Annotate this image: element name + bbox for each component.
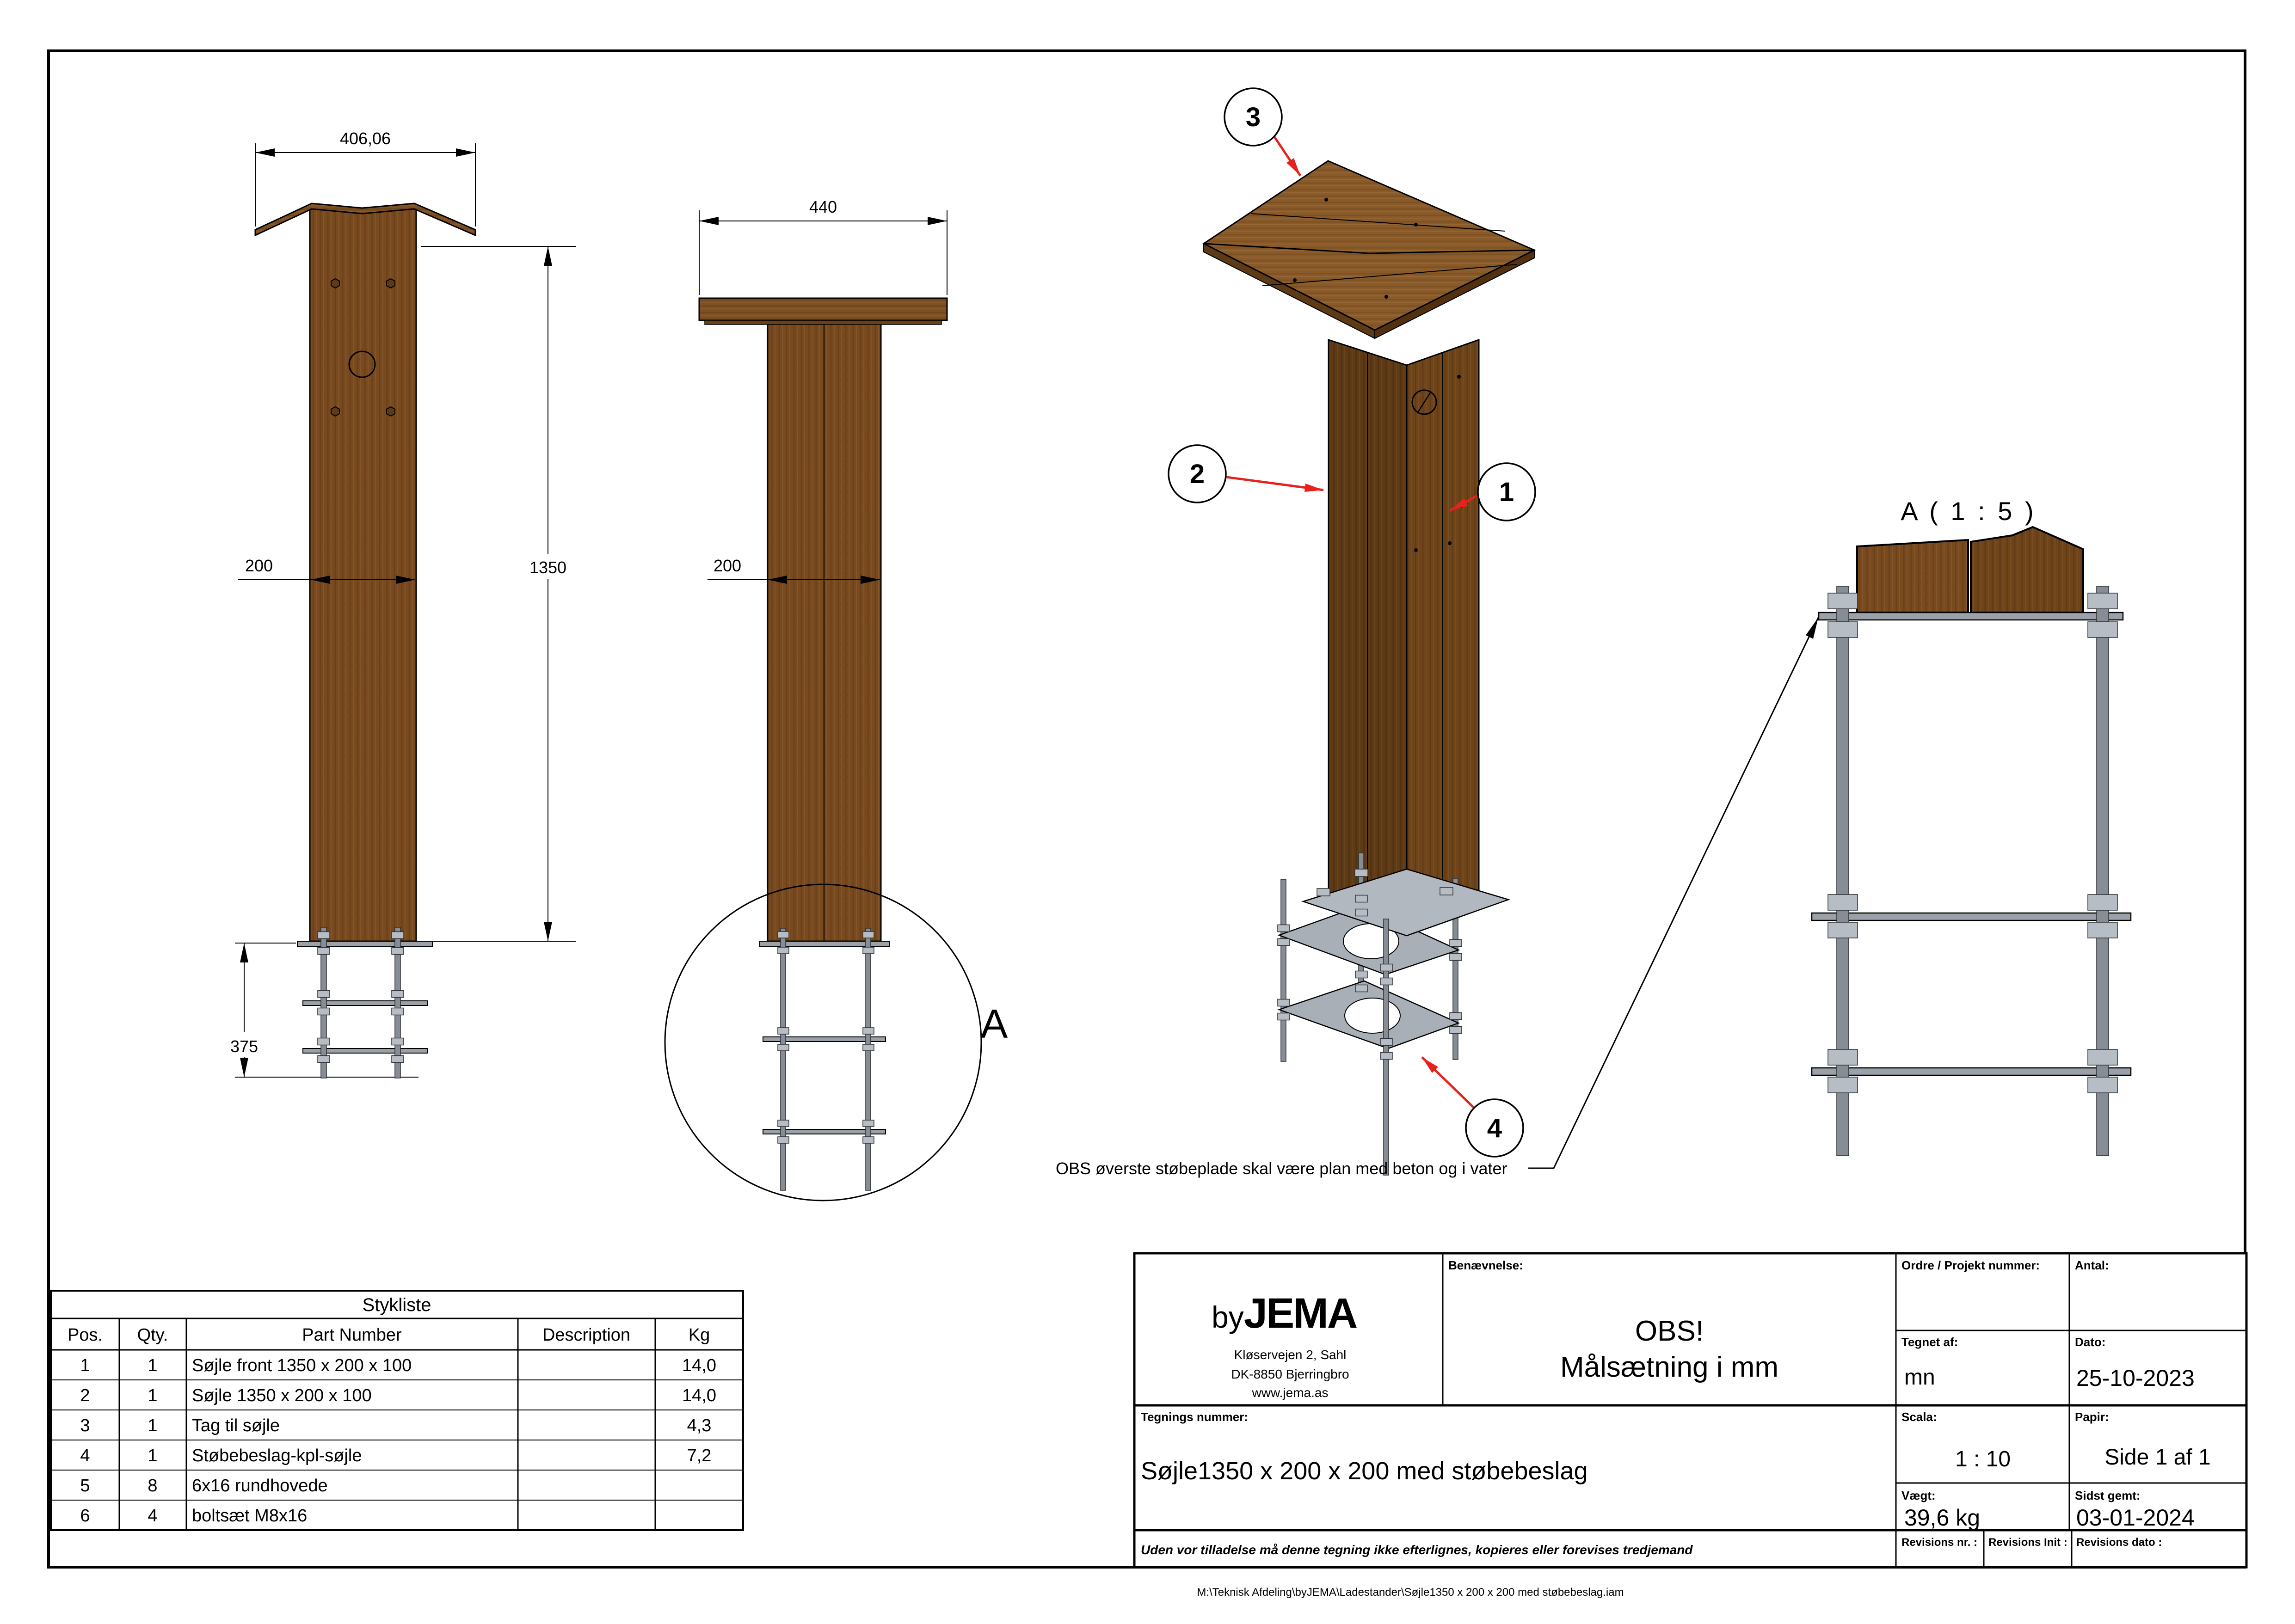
hex-nut	[1380, 964, 1392, 971]
hex-nut	[1450, 940, 1462, 947]
hex-nut	[392, 1038, 404, 1045]
label-vaegt: Vægt:	[1901, 1489, 1936, 1502]
hex-nut	[1380, 1053, 1392, 1060]
hex-nut	[778, 1028, 789, 1034]
hex-nut	[778, 1137, 789, 1143]
value-benaevnelse-line2: Målsætning i mm	[1560, 1351, 1778, 1383]
dim-text: 440	[809, 197, 837, 216]
svg-text:4: 4	[148, 1506, 157, 1526]
svg-text:7,2: 7,2	[687, 1446, 712, 1465]
plate-hole	[1345, 998, 1400, 1033]
dim-text: 406,06	[340, 129, 391, 148]
label-scala: Scala:	[1901, 1410, 1937, 1424]
hex-nut	[778, 1120, 789, 1127]
hex-nut	[392, 948, 404, 955]
company-address1: Kløservejen 2, Sahl	[1234, 1348, 1347, 1362]
hex-nut	[318, 1008, 330, 1015]
svg-text:8: 8	[148, 1476, 157, 1495]
threaded-rod	[2097, 586, 2109, 1156]
svg-text:4: 4	[80, 1446, 90, 1465]
side-roof-lip	[705, 320, 941, 325]
hex-nut	[1450, 954, 1462, 961]
hex-nut	[392, 1008, 404, 1015]
threaded-rod	[1281, 879, 1286, 1061]
hex-nut	[863, 1044, 874, 1051]
svg-text:1: 1	[148, 1356, 157, 1375]
hex-nut	[1828, 895, 1858, 910]
svg-text:Søjle 1350 x 200 x 100: Søjle 1350 x 200 x 100	[192, 1386, 372, 1405]
svg-text:6: 6	[80, 1506, 90, 1526]
svg-text:1: 1	[148, 1416, 157, 1435]
label-revisions-init: Revisions Init :	[1988, 1536, 2067, 1549]
svg-text:Søjle front 1350 x 200 x 100: Søjle front 1350 x 200 x 100	[192, 1356, 412, 1375]
label-tegnings-nummer: Tegnings nummer:	[1141, 1410, 1248, 1424]
table-title: Stykliste	[363, 1295, 431, 1315]
hex-nut	[1355, 895, 1367, 902]
label-tegnet-af: Tegnet af:	[1901, 1335, 1958, 1349]
hex-nut	[1278, 925, 1290, 932]
hex-nut	[2088, 593, 2117, 609]
parts-table: Stykliste Pos. Qty. Part Number Descript…	[51, 1291, 743, 1530]
dim-text: 375	[230, 1037, 258, 1056]
balloon-number: 1	[1499, 477, 1514, 507]
value-dato: 25-10-2023	[2076, 1365, 2195, 1391]
value-tegnet-af: mn	[1904, 1365, 1935, 1390]
company-website: www.jema.as	[1252, 1385, 1329, 1400]
svg-text:3: 3	[80, 1416, 90, 1435]
screw-icon	[331, 407, 339, 416]
hex-nut	[1828, 1077, 1858, 1093]
threaded-rod	[866, 928, 871, 1190]
hex-nut	[1317, 889, 1330, 896]
threaded-rod	[1837, 586, 1849, 1156]
svg-text:1: 1	[148, 1446, 157, 1465]
hex-nut	[863, 947, 874, 954]
company-address2: DK-8850 Bjerringbro	[1231, 1367, 1349, 1381]
label-dato: Dato:	[2075, 1335, 2105, 1349]
detail-view-title: A ( 1 : 5 )	[1901, 496, 2036, 526]
label-papir: Papir:	[2075, 1410, 2109, 1424]
file-path: M:\Teknisk Afdeling\byJEMA\Ladestander\S…	[1197, 1586, 1624, 1599]
dim-text: 200	[714, 556, 741, 575]
detail-bar	[1812, 913, 2131, 920]
threaded-rod	[781, 928, 786, 1190]
label-benaevnelse: Benævnelse:	[1448, 1258, 1523, 1272]
screw-icon	[387, 407, 395, 416]
detail-bar	[1812, 1068, 2131, 1075]
hex-nut	[318, 932, 330, 939]
title-block: byJEMA Kløservejen 2, Sahl DK-8850 Bjerr…	[1134, 1253, 2246, 1567]
dim-text: 200	[245, 556, 273, 575]
hex-nut	[318, 1056, 330, 1063]
detail-wood-left	[1857, 540, 1968, 613]
svg-text:4,3: 4,3	[687, 1416, 712, 1435]
hex-nut	[778, 932, 789, 938]
hex-nut	[1828, 593, 1858, 609]
dim-text: 1350	[529, 558, 566, 577]
screw-icon	[331, 279, 339, 288]
detail-label: A	[981, 1001, 1008, 1047]
hex-nut	[1278, 939, 1290, 946]
hex-nut	[778, 1044, 789, 1051]
col-header-desc: Description	[542, 1325, 630, 1345]
svg-text:6x16 rundhovede: 6x16 rundhovede	[192, 1476, 328, 1495]
hex-nut	[2088, 1049, 2117, 1065]
value-vaegt: 39,6 kg	[1904, 1505, 1980, 1531]
front-column	[310, 208, 416, 941]
balloon-number: 2	[1190, 459, 1205, 489]
hex-nut	[863, 1137, 874, 1143]
screw-icon	[387, 279, 395, 288]
hex-nut	[1380, 1039, 1392, 1046]
label-revisions-nr: Revisions nr. :	[1901, 1536, 1977, 1549]
hex-nut	[392, 1056, 404, 1063]
label-revisions-dato: Revisions dato :	[2076, 1536, 2162, 1549]
svg-text:2: 2	[80, 1386, 90, 1405]
balloon-number: 4	[1487, 1113, 1502, 1143]
col-header-part: Part Number	[302, 1325, 402, 1345]
iso-anchor-rods-front	[1384, 919, 1389, 1175]
svg-text:boltsæt M8x16: boltsæt M8x16	[192, 1506, 307, 1526]
svg-text:1: 1	[80, 1356, 90, 1375]
technical-drawing-sheet: 406,06 200 1350 375	[0, 0, 2295, 1622]
threaded-rod	[1384, 919, 1389, 1175]
balloon-number: 3	[1246, 102, 1261, 132]
hex-nut	[1355, 869, 1368, 876]
value-tegnings-nummer: Søjle1350 x 200 x 200 med støbebeslag	[1141, 1457, 1588, 1485]
hex-nut	[1828, 622, 1858, 637]
hex-nut	[318, 1038, 330, 1045]
col-header-qty: Qty.	[137, 1325, 168, 1345]
svg-text:14,0: 14,0	[682, 1386, 716, 1405]
hex-nut	[863, 932, 874, 938]
hex-nut	[392, 932, 404, 939]
hex-nut	[2088, 1077, 2117, 1093]
hex-nut	[1828, 922, 1858, 938]
value-scala: 1 : 10	[1955, 1447, 2011, 1471]
col-header-kg: Kg	[689, 1325, 710, 1345]
hex-nut	[1380, 978, 1392, 985]
hex-nut	[1355, 985, 1367, 992]
hex-nut	[863, 1028, 874, 1034]
disclaimer-text: Uden vor tilladelse må denne tegning ikk…	[1141, 1543, 1693, 1557]
hex-nut	[318, 991, 330, 998]
label-antal: Antal:	[2075, 1258, 2109, 1272]
hex-nut	[2088, 622, 2117, 637]
value-papir: Side 1 af 1	[2104, 1445, 2211, 1470]
hex-nut	[778, 947, 789, 954]
value-sidst-gemt: 03-01-2024	[2076, 1505, 2195, 1531]
hex-nut	[392, 991, 404, 998]
hex-nut	[1450, 1013, 1462, 1020]
hex-nut	[1440, 888, 1453, 895]
hex-nut	[2088, 922, 2117, 938]
side-roof-cap	[699, 298, 947, 320]
value-benaevnelse-line1: OBS!	[1635, 1315, 1704, 1347]
label-ordre: Ordre / Projekt nummer:	[1901, 1258, 2040, 1272]
svg-text:5: 5	[80, 1476, 90, 1495]
label-sidst-gemt: Sidst gemt:	[2075, 1489, 2141, 1502]
note-text: OBS øverste støbeplade skal være plan me…	[1056, 1159, 1507, 1178]
hex-nut	[1278, 999, 1290, 1006]
hex-nut	[1355, 909, 1367, 916]
hex-nut	[1278, 1013, 1290, 1020]
svg-text:Tag til søjle: Tag til søjle	[192, 1416, 280, 1435]
hex-nut	[1450, 1027, 1462, 1034]
anchor-top-plate	[297, 941, 432, 947]
svg-text:1: 1	[148, 1386, 157, 1405]
svg-text:14,0: 14,0	[682, 1356, 716, 1375]
hex-nut	[2088, 895, 2117, 910]
hex-nut	[1355, 971, 1367, 978]
hex-nut	[863, 1120, 874, 1127]
hex-nut	[1828, 1049, 1858, 1065]
col-header-pos: Pos.	[68, 1325, 103, 1345]
detail-top-plate	[1819, 613, 2123, 620]
hex-nut	[318, 948, 330, 955]
svg-text:Støbebeslag-kpl-søjle: Støbebeslag-kpl-søjle	[192, 1446, 362, 1465]
